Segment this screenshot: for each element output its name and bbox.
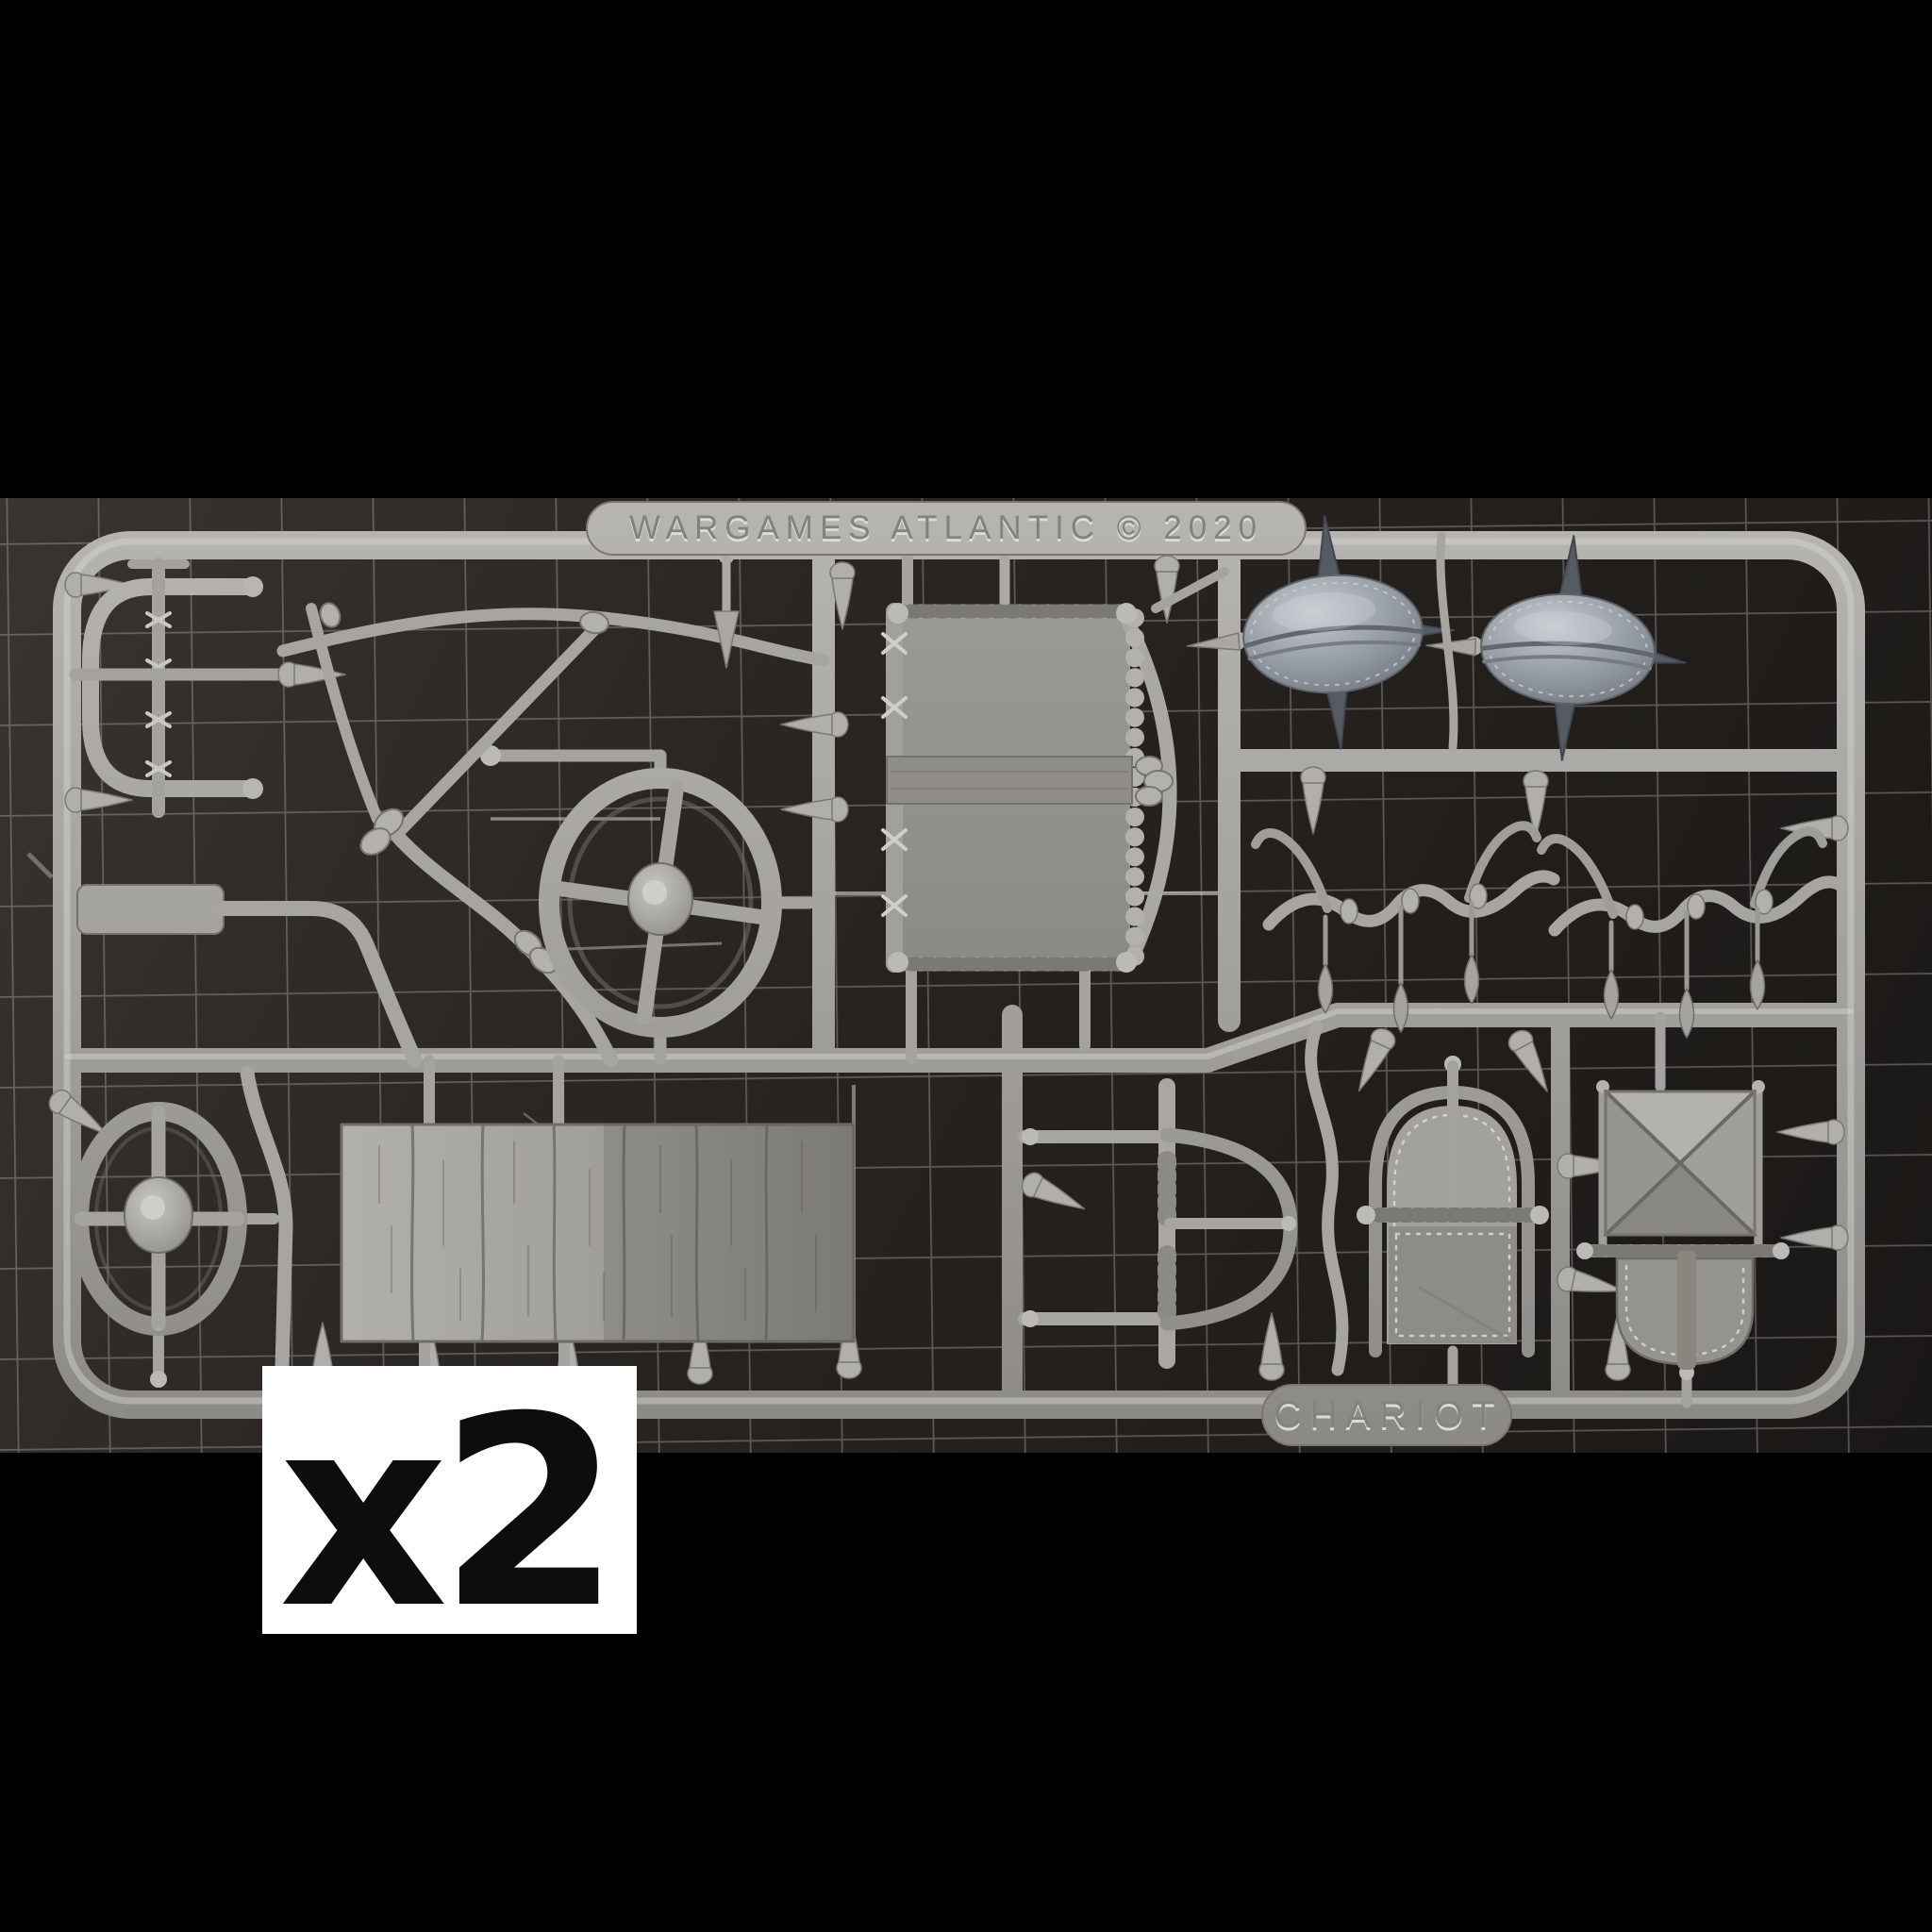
cross-wheel-lower-part <box>79 1111 238 1326</box>
sprue-photo: WARGAMES ATLANTIC © 2020 WARGAMES ATLANT… <box>0 0 1932 1932</box>
maker-banner: WARGAMES ATLANTIC © 2020 WARGAMES ATLANT… <box>587 502 1306 555</box>
quantity-badge: x2 <box>262 1360 637 1666</box>
sprue-tag-text: CHARIOT <box>1274 1394 1504 1436</box>
quantity-text: x2 <box>279 1360 612 1666</box>
product-photo-stage: WARGAMES ATLANTIC © 2020 WARGAMES ATLANT… <box>0 0 1932 1932</box>
chariot-floor-panel-part <box>883 603 1173 973</box>
sprue-name-tag: CHARIOT CHARIOT <box>1262 1385 1511 1445</box>
plank-platform-part <box>341 1124 854 1341</box>
banner-text: WARGAMES ATLANTIC © 2020 <box>629 509 1263 546</box>
